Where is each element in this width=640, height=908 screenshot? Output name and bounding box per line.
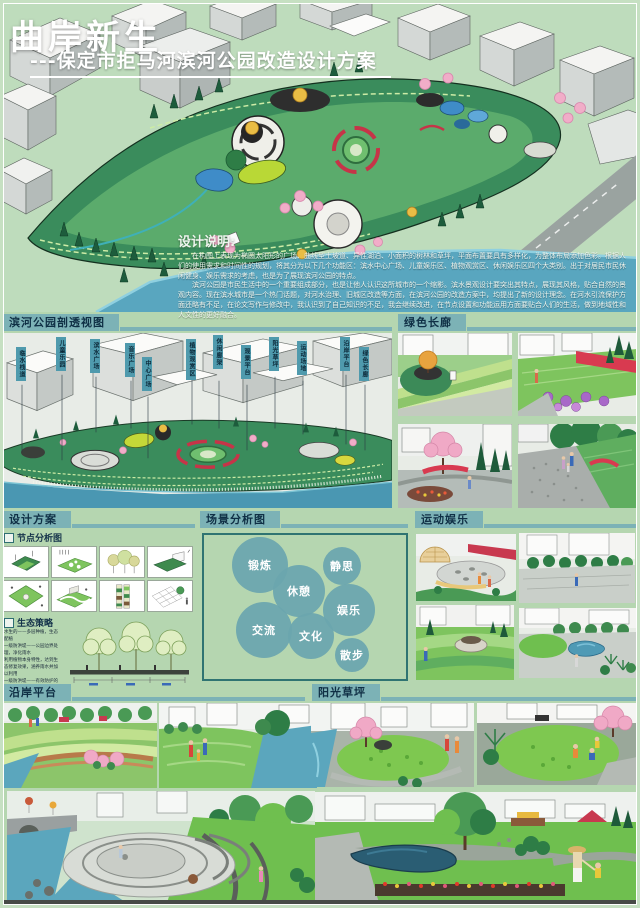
design-poster: 曲岸新生 ---保定市拒马河滨河公园改造设计方案 设计说明: 在构图上表现为椭圆… <box>0 0 640 908</box>
scene-analysis-diagram: 锻炼 静思 娱乐 休憩 交流 文化 散步 <box>202 533 408 681</box>
bubble-walking: 散步 <box>335 638 369 672</box>
photo-green-corridor-4 <box>518 424 637 508</box>
photo-green-corridor-3 <box>398 424 512 508</box>
section-tab-sports: 运动娱乐 <box>415 511 483 528</box>
photo-green-corridor-2 <box>518 333 637 416</box>
section-tab-platform: 沿岸平台 <box>3 684 71 701</box>
photo-sports-3 <box>416 605 514 680</box>
node-diagram-8 <box>147 580 193 612</box>
section-rule <box>381 697 637 701</box>
section-rule <box>281 524 408 528</box>
node-analysis-grid <box>3 546 197 612</box>
perspective-tag-10: 运动场地 <box>297 341 307 375</box>
section-header-sports: 运动娱乐 <box>415 510 637 528</box>
photo-lawn-large <box>315 792 637 903</box>
section-rule <box>72 524 195 528</box>
section-tab-design-plan: 设计方案 <box>3 511 71 528</box>
section-header-design-plan: 设计方案 <box>3 510 195 528</box>
perspective-tag-2: 儿童乐园 <box>56 337 66 371</box>
perspective-tag-1: 临水栈道 <box>16 347 26 381</box>
design-notes-heading: 设计说明: <box>178 231 630 250</box>
section-header-green-corridor: 绿色长廊 <box>398 313 637 331</box>
node-diagram-2 <box>51 546 97 578</box>
bubble-culture: 文化 <box>288 613 334 659</box>
perspective-tag-3: 滨水广场 <box>90 339 100 373</box>
section-header-scene-analysis: 场景分析图 <box>200 510 408 528</box>
section-tab-perspective: 滨河公园剖透视图 <box>3 314 119 331</box>
section-header-lawn: 阳光草坪 <box>312 683 637 701</box>
bubble-communication: 交流 <box>236 602 292 658</box>
photo-lawn-2 <box>477 703 637 785</box>
photo-green-corridor-1 <box>398 333 512 416</box>
section-rule <box>120 327 392 331</box>
node-diagram-6 <box>51 580 97 612</box>
section-tab-green-corridor: 绿色长廊 <box>398 314 466 331</box>
photo-platform-large <box>7 791 315 903</box>
perspective-tag-4: 音乐广场 <box>125 343 135 377</box>
section-perspective-render: 临水栈道 儿童乐园 滨水广场 音乐广场 中心广场 植物观赏区 休闲廊架 观景平台… <box>3 333 392 508</box>
photo-platform-1 <box>3 703 157 788</box>
perspective-tag-11: 沿岸平台 <box>340 337 350 371</box>
poster-subtitle: ---保定市拒马河滨河公园改造设计方案 <box>30 46 391 78</box>
section-rule <box>72 697 305 701</box>
eco-strategy-label: 生态策略 <box>17 616 53 629</box>
perspective-tag-12: 绿色长廊 <box>359 347 369 381</box>
node-analysis-sublabel: 节点分析图 <box>4 531 62 544</box>
bubble-meditation: 静思 <box>323 547 361 585</box>
eco-strategy-diagram <box>64 617 195 688</box>
node-diagram-5 <box>3 580 49 612</box>
section-rule <box>484 524 637 528</box>
node-diagram-7 <box>99 580 145 612</box>
photo-platform-2 <box>159 703 317 788</box>
perspective-tag-7: 休闲廊架 <box>213 335 223 369</box>
node-diagram-4 <box>147 546 193 578</box>
perspective-tag-8: 观景平台 <box>241 345 251 379</box>
checkbox-icon <box>4 618 14 628</box>
section-tab-scene-analysis: 场景分析图 <box>200 511 280 528</box>
section-header-perspective: 滨河公园剖透视图 <box>3 313 392 331</box>
section-tab-lawn: 阳光草坪 <box>312 684 380 701</box>
node-diagram-1 <box>3 546 49 578</box>
photo-sports-1 <box>416 534 516 601</box>
eco-strategy-sublabel: 生态策略 <box>4 616 53 629</box>
design-notes-paragraph-1: 在构图上表现为椭圆太阳形的广场、曲线型土坡道、异性湖泊、小面积的树林和草坪，平面… <box>178 252 630 281</box>
perspective-tag-5: 中心广场 <box>142 357 152 391</box>
bottom-border-strip <box>0 900 640 908</box>
photo-sports-2 <box>519 533 635 603</box>
node-analysis-label: 节点分析图 <box>17 531 62 544</box>
photo-sports-4 <box>519 608 636 678</box>
section-header-platform: 沿岸平台 <box>3 683 305 701</box>
photo-lawn-1 <box>311 703 474 787</box>
design-notes: 设计说明: 在构图上表现为椭圆太阳形的广场、曲线型土坡道、异性湖泊、小面积的树林… <box>178 231 630 321</box>
perspective-tag-9: 阳光草坪 <box>269 337 279 371</box>
section-rule <box>467 327 637 331</box>
checkbox-icon <box>4 533 14 543</box>
node-diagram-3 <box>99 546 145 578</box>
perspective-tag-6: 植物观赏区 <box>186 339 196 380</box>
